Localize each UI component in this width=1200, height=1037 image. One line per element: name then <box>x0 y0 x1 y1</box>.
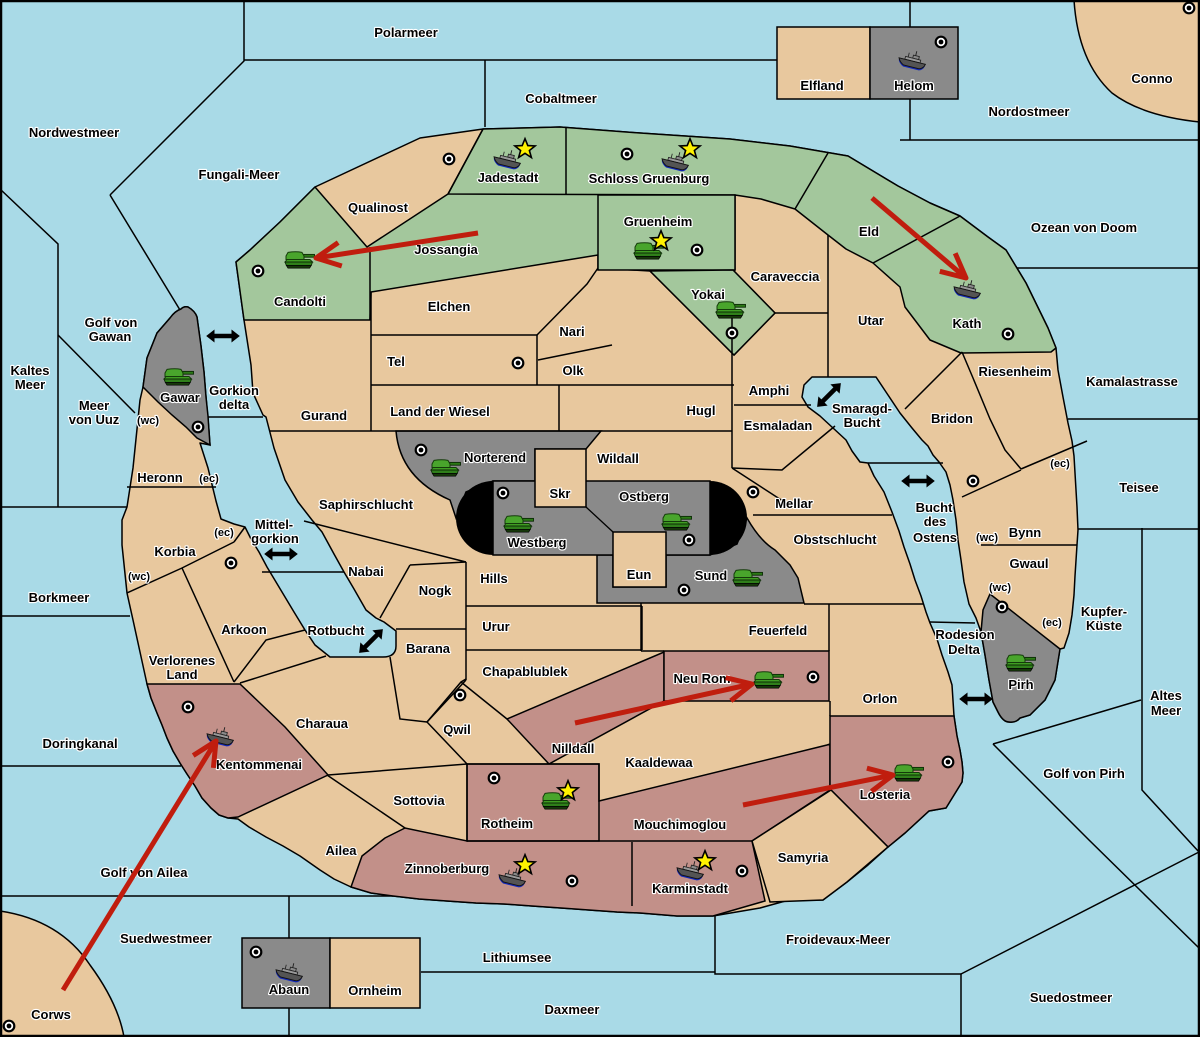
svg-text:Rotbucht: Rotbucht <box>307 623 365 638</box>
svg-text:Schloss Gruenburg: Schloss Gruenburg <box>589 171 710 186</box>
svg-text:Bynn: Bynn <box>1009 525 1042 540</box>
svg-text:(ec): (ec) <box>1042 617 1062 629</box>
svg-text:Ornheim: Ornheim <box>348 983 401 998</box>
svg-text:Gorkion: Gorkion <box>209 383 259 398</box>
svg-text:Losteria: Losteria <box>860 787 911 802</box>
svg-text:Nilldall: Nilldall <box>552 741 595 756</box>
svg-text:Suedwestmeer: Suedwestmeer <box>120 931 212 946</box>
svg-text:Gurand: Gurand <box>301 408 347 423</box>
svg-text:Mouchimoglou: Mouchimoglou <box>634 817 726 832</box>
svg-text:Obstschlucht: Obstschlucht <box>793 532 877 547</box>
svg-text:(wc): (wc) <box>128 571 150 583</box>
svg-text:Golf von Ailea: Golf von Ailea <box>101 865 189 880</box>
svg-text:Skr: Skr <box>550 486 571 501</box>
svg-text:Yokai: Yokai <box>691 287 725 302</box>
svg-text:Bridon: Bridon <box>931 411 973 426</box>
svg-text:Kentommenai: Kentommenai <box>216 757 302 772</box>
svg-text:(wc): (wc) <box>989 582 1011 594</box>
svg-text:Golf von Pirh: Golf von Pirh <box>1043 766 1125 781</box>
svg-text:Olk: Olk <box>563 363 585 378</box>
svg-text:Golf von: Golf von <box>85 315 138 330</box>
svg-text:Arkoon: Arkoon <box>221 622 267 637</box>
svg-text:Kamalastrasse: Kamalastrasse <box>1086 374 1178 389</box>
svg-text:Charaua: Charaua <box>296 716 349 731</box>
svg-text:Teisee: Teisee <box>1119 480 1159 495</box>
svg-text:Gawan: Gawan <box>89 329 132 344</box>
svg-text:Jadestadt: Jadestadt <box>478 170 539 185</box>
svg-text:(ec): (ec) <box>214 527 234 539</box>
svg-text:Froidevaux-Meer: Froidevaux-Meer <box>786 932 890 947</box>
svg-text:Esmaladan: Esmaladan <box>744 418 813 433</box>
svg-text:von Uuz: von Uuz <box>69 412 120 427</box>
svg-text:(ec): (ec) <box>199 473 219 485</box>
svg-text:Kaltes: Kaltes <box>10 363 49 378</box>
svg-text:Sund: Sund <box>695 568 728 583</box>
svg-text:Nordostmeer: Nordostmeer <box>989 104 1070 119</box>
svg-text:Utar: Utar <box>858 313 884 328</box>
svg-text:Meer: Meer <box>1151 703 1181 718</box>
svg-text:Conno: Conno <box>1131 71 1172 86</box>
svg-text:des: des <box>924 514 946 529</box>
svg-text:Ostberg: Ostberg <box>619 489 669 504</box>
svg-text:Barana: Barana <box>406 641 451 656</box>
svg-text:Meer: Meer <box>79 398 109 413</box>
svg-text:Land: Land <box>166 667 197 682</box>
svg-text:Bucht: Bucht <box>916 500 954 515</box>
svg-text:Delta: Delta <box>948 642 981 657</box>
svg-text:(wc): (wc) <box>976 532 998 544</box>
svg-text:Kupfer-: Kupfer- <box>1081 604 1127 619</box>
svg-text:Ailea: Ailea <box>325 843 357 858</box>
svg-text:Gawar: Gawar <box>160 390 200 405</box>
svg-text:Saphirschlucht: Saphirschlucht <box>319 497 414 512</box>
svg-text:Korbia: Korbia <box>154 544 196 559</box>
svg-text:Nogk: Nogk <box>419 583 452 598</box>
svg-text:Verlorenes: Verlorenes <box>149 653 216 668</box>
svg-text:gorkion: gorkion <box>251 531 299 546</box>
svg-text:Borkmeer: Borkmeer <box>29 590 90 605</box>
svg-text:Qualinost: Qualinost <box>348 200 409 215</box>
svg-text:Mellar: Mellar <box>775 496 813 511</box>
svg-text:Qwil: Qwil <box>443 722 470 737</box>
svg-text:Hills: Hills <box>480 571 507 586</box>
svg-text:Hugl: Hugl <box>687 403 716 418</box>
svg-text:Helom: Helom <box>894 78 934 93</box>
svg-text:Amphi: Amphi <box>749 383 789 398</box>
svg-text:(wc): (wc) <box>137 415 159 427</box>
svg-text:Pirh: Pirh <box>1008 677 1033 692</box>
svg-text:Westberg: Westberg <box>508 535 567 550</box>
svg-text:delta: delta <box>219 397 250 412</box>
svg-text:Daxmeer: Daxmeer <box>545 1002 600 1017</box>
svg-text:Caraveccia: Caraveccia <box>751 269 820 284</box>
svg-text:(ec): (ec) <box>1050 458 1070 470</box>
svg-text:Rodesion: Rodesion <box>935 627 994 642</box>
svg-text:Candolti: Candolti <box>274 294 326 309</box>
svg-text:Nordwestmeer: Nordwestmeer <box>29 125 119 140</box>
svg-text:Samyria: Samyria <box>778 850 829 865</box>
svg-text:Doringkanal: Doringkanal <box>42 736 117 751</box>
svg-text:Rotheim: Rotheim <box>481 816 533 831</box>
svg-text:Fungali-Meer: Fungali-Meer <box>199 167 280 182</box>
svg-text:Nabai: Nabai <box>348 564 383 579</box>
svg-text:Norterend: Norterend <box>464 450 526 465</box>
svg-text:Eun: Eun <box>627 567 652 582</box>
svg-text:Abaun: Abaun <box>269 982 310 997</box>
svg-text:Elchen: Elchen <box>428 299 471 314</box>
svg-text:Meer: Meer <box>15 377 45 392</box>
svg-text:Neu Rom: Neu Rom <box>673 671 730 686</box>
svg-text:Altes: Altes <box>1150 688 1182 703</box>
svg-text:Wildall: Wildall <box>597 451 639 466</box>
svg-text:Land der Wiesel: Land der Wiesel <box>390 404 490 419</box>
svg-text:Küste: Küste <box>1086 618 1122 633</box>
svg-text:Ozean von Doom: Ozean von Doom <box>1031 220 1137 235</box>
svg-text:Mittel-: Mittel- <box>255 517 293 532</box>
svg-text:Sottovia: Sottovia <box>393 793 445 808</box>
svg-text:Suedostmeer: Suedostmeer <box>1030 990 1112 1005</box>
svg-text:Karminstadt: Karminstadt <box>652 881 729 896</box>
svg-text:Corws: Corws <box>31 1007 71 1022</box>
svg-text:Kath: Kath <box>953 316 982 331</box>
svg-text:Orlon: Orlon <box>863 691 898 706</box>
svg-text:Elfland: Elfland <box>800 78 843 93</box>
svg-text:Gwaul: Gwaul <box>1009 556 1048 571</box>
svg-text:Eld: Eld <box>859 224 879 239</box>
svg-text:Bucht: Bucht <box>844 415 882 430</box>
svg-text:Riesenheim: Riesenheim <box>979 364 1052 379</box>
svg-text:Smaragd-: Smaragd- <box>832 401 892 416</box>
svg-text:Lithiumsee: Lithiumsee <box>483 950 552 965</box>
svg-text:Ostens: Ostens <box>913 530 957 545</box>
svg-text:Tel: Tel <box>387 354 405 369</box>
svg-text:Jossangia: Jossangia <box>414 242 478 257</box>
svg-text:Polarmeer: Polarmeer <box>374 25 438 40</box>
svg-text:Heronn: Heronn <box>137 470 183 485</box>
svg-text:Zinnoberburg: Zinnoberburg <box>405 861 490 876</box>
svg-text:Cobaltmeer: Cobaltmeer <box>525 91 597 106</box>
svg-text:Kaaldewaa: Kaaldewaa <box>625 755 693 770</box>
svg-text:Nari: Nari <box>559 324 584 339</box>
svg-text:Chapablublek: Chapablublek <box>482 664 568 679</box>
svg-text:Gruenheim: Gruenheim <box>624 214 693 229</box>
svg-text:Feuerfeld: Feuerfeld <box>749 623 808 638</box>
svg-text:Urur: Urur <box>482 619 509 634</box>
